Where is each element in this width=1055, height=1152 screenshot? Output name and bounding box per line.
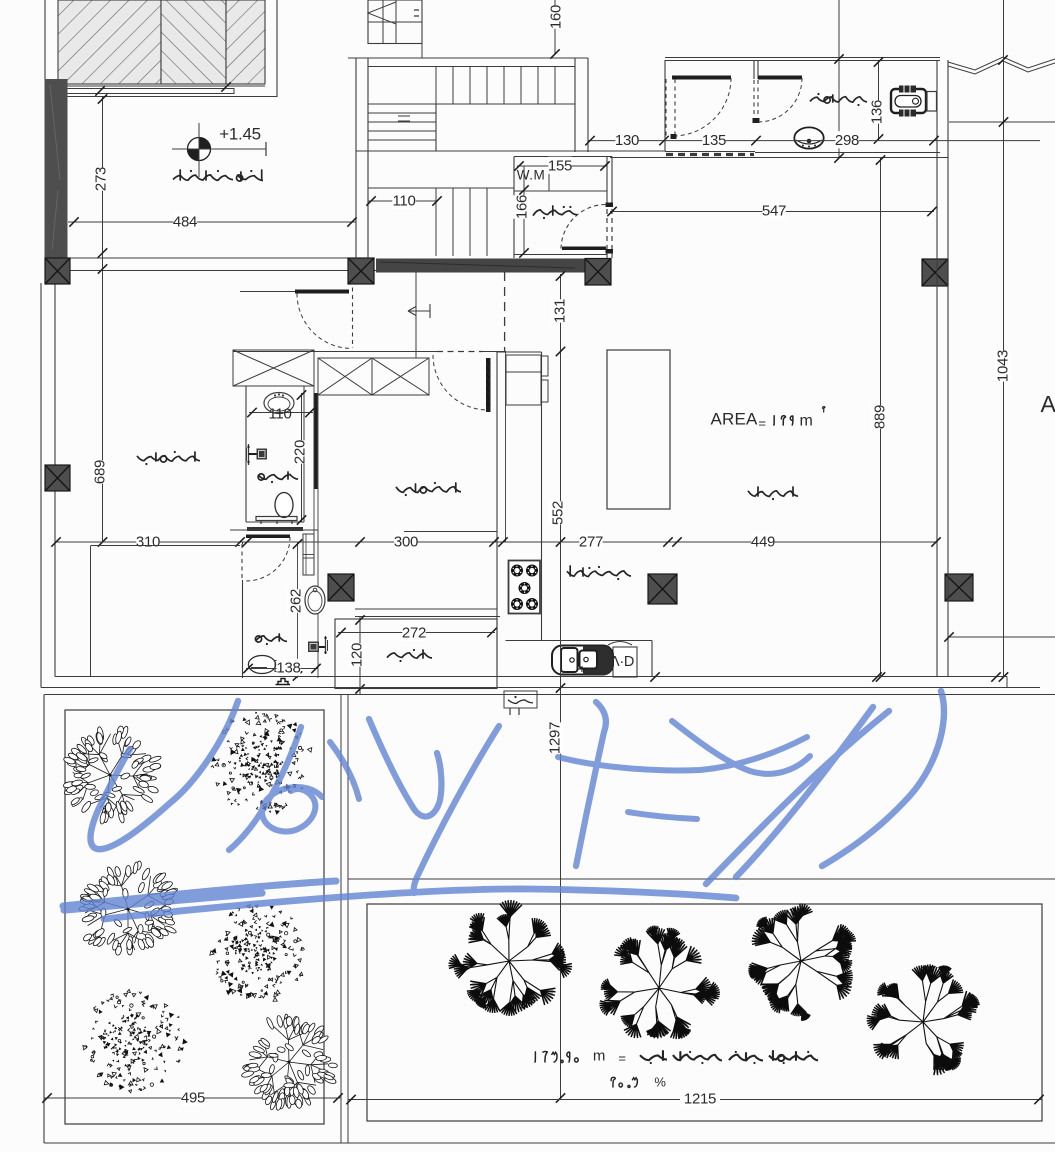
svg-text:A: A bbox=[1040, 391, 1055, 417]
svg-text:220: 220 bbox=[292, 440, 309, 464]
svg-text:1215: 1215 bbox=[684, 1091, 716, 1108]
svg-text:W.M: W.M bbox=[517, 168, 546, 183]
svg-text:135: 135 bbox=[702, 132, 726, 149]
svg-text:310: 310 bbox=[136, 534, 160, 551]
svg-text:273: 273 bbox=[93, 167, 110, 191]
svg-text:%: % bbox=[654, 1075, 666, 1090]
svg-text:689: 689 bbox=[92, 460, 109, 484]
svg-text:547: 547 bbox=[762, 203, 786, 220]
svg-text:m: m bbox=[799, 413, 812, 430]
svg-text:160: 160 bbox=[548, 5, 565, 29]
svg-text:495: 495 bbox=[181, 1090, 205, 1107]
svg-text:166: 166 bbox=[514, 195, 531, 219]
svg-text:138: 138 bbox=[276, 660, 300, 677]
svg-text:120: 120 bbox=[349, 643, 366, 667]
svg-text:1043: 1043 bbox=[995, 350, 1012, 382]
svg-text:136: 136 bbox=[869, 100, 886, 124]
svg-text:+1.45: +1.45 bbox=[219, 125, 261, 144]
svg-text:155: 155 bbox=[548, 158, 572, 175]
svg-text:552: 552 bbox=[550, 501, 567, 525]
svg-text:277: 277 bbox=[579, 534, 603, 551]
svg-text:298: 298 bbox=[835, 132, 859, 149]
svg-text:131: 131 bbox=[552, 299, 569, 323]
svg-text:110: 110 bbox=[392, 193, 415, 210]
svg-text:484: 484 bbox=[173, 214, 197, 231]
svg-text:272: 272 bbox=[402, 625, 426, 642]
svg-text:262: 262 bbox=[288, 589, 305, 613]
svg-text:1297: 1297 bbox=[547, 722, 564, 754]
svg-text:=: = bbox=[618, 1051, 625, 1066]
svg-text:m: m bbox=[593, 1048, 605, 1065]
svg-text:110: 110 bbox=[268, 406, 291, 423]
svg-text:300: 300 bbox=[394, 534, 418, 551]
svg-text:=: = bbox=[758, 416, 765, 431]
svg-text:130: 130 bbox=[615, 132, 639, 149]
svg-text:449: 449 bbox=[751, 534, 775, 551]
svg-text:Λ·D: Λ·D bbox=[610, 654, 634, 670]
svg-text:AREA: AREA bbox=[710, 410, 758, 429]
svg-text:889: 889 bbox=[872, 405, 889, 429]
